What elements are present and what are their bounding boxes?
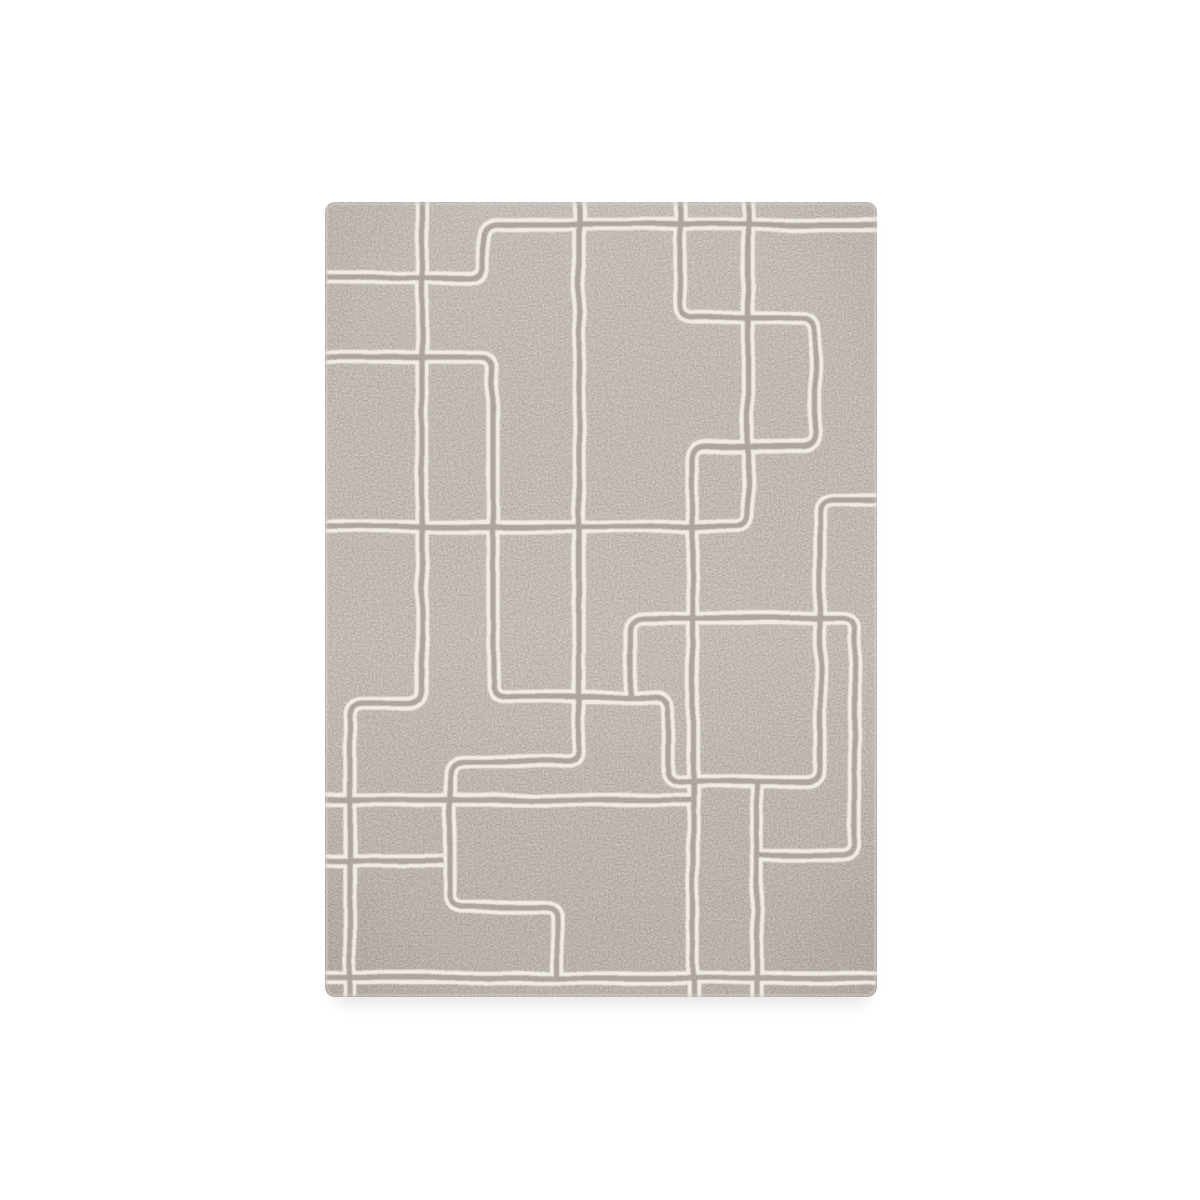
product-photo <box>0 0 1200 1200</box>
rug-photo <box>0 0 1200 1200</box>
rug <box>325 202 877 997</box>
wool-grain-overlay <box>325 202 877 997</box>
